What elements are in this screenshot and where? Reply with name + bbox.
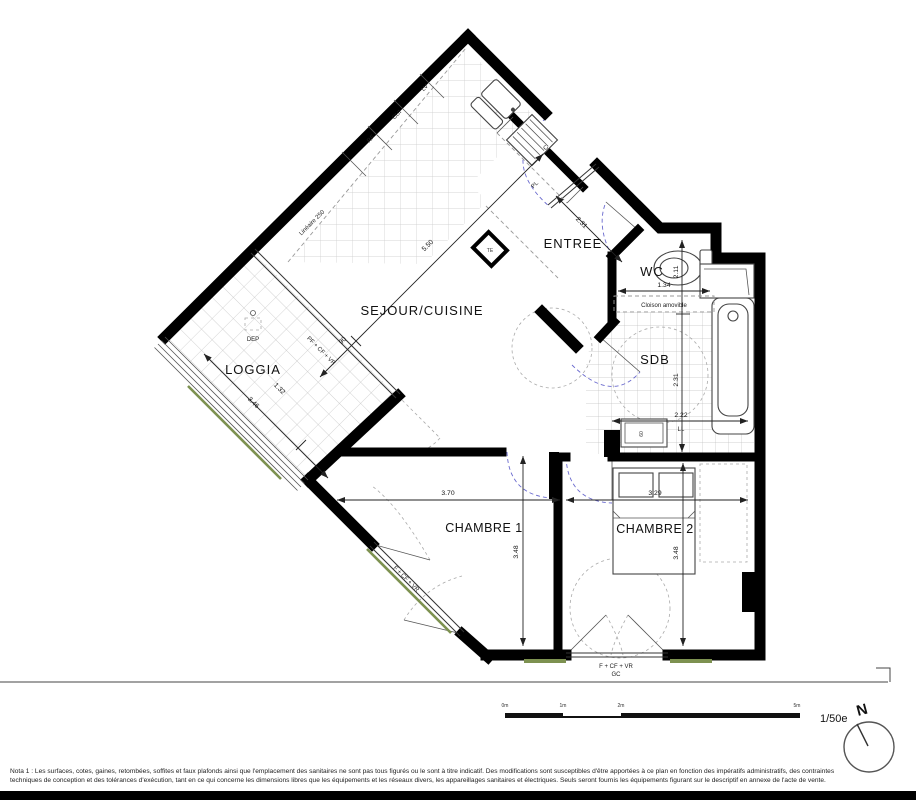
- label-te: TE: [487, 248, 494, 254]
- scale-label: 1/50e: [820, 713, 848, 725]
- chambre1-door-arc: [507, 452, 553, 498]
- room-label-wc: WC: [640, 264, 664, 279]
- floorplan-drawing: SEJOUR/CUISINE ENTREE WC SDB LOGGIA CHAM…: [0, 0, 916, 800]
- label-pl: PL: [531, 180, 541, 190]
- wardrobe-dashed: [700, 464, 747, 562]
- wall-sw-facade: [308, 480, 372, 544]
- dim-ch1-width: 3.70: [441, 490, 454, 497]
- bathtub: [712, 298, 754, 434]
- kitchen-floor-tiles: [288, 48, 536, 264]
- scale-tick-1: 1m: [560, 703, 567, 709]
- floorplan-page: SEJOUR/CUISINE ENTREE WC SDB LOGGIA CHAM…: [0, 0, 916, 800]
- scale-bar: 0m 1m 2m 5m 1/50e: [502, 703, 848, 725]
- label-ll-width: 60: [639, 431, 645, 437]
- room-label-sdb: SDB: [640, 352, 670, 367]
- scale-tick-3: 5m: [794, 703, 801, 709]
- dim-wc-depth: 2.11: [673, 265, 680, 278]
- room-label-entree: ENTREE: [544, 236, 603, 251]
- label-cloison: Cloison amovible: [641, 303, 687, 309]
- bottom-black-bar: [0, 791, 916, 800]
- dim-sdb-width: 2.22: [674, 412, 687, 419]
- dim-wc-width: 1.34: [657, 282, 670, 289]
- label-ll: LL: [678, 427, 685, 433]
- footer-graphics: 0m 1m 2m 5m 1/50e N: [0, 668, 894, 772]
- wc-door-arc: [602, 202, 612, 256]
- label-gc: GC: [612, 672, 622, 678]
- scale-tick-2: 2m: [618, 703, 625, 709]
- wall-ne-2: [597, 165, 642, 210]
- chambre2-door-arc: [566, 457, 612, 503]
- label-window-bottom: F + CF + VR: [599, 664, 633, 670]
- nota-line-2: techniques de conception et des toléranc…: [10, 777, 908, 786]
- dim-ch1-depth: 3.48: [513, 545, 520, 558]
- dim-ch2-width: 3.29: [648, 490, 661, 497]
- label-dep: DEP: [247, 337, 259, 343]
- shelf-niche: [700, 264, 754, 298]
- dim-entree: 2.31: [574, 216, 588, 230]
- nota-line-1: Nota 1 : Les surfaces, cotes, gaines, re…: [10, 768, 908, 777]
- wall-stub-hall: [604, 430, 620, 457]
- room-label-chambre1: CHAMBRE 1: [445, 521, 522, 535]
- pilaster: [742, 572, 760, 612]
- entrance-door-leaf: [548, 164, 596, 205]
- wall-sw-corner: [462, 634, 488, 657]
- room-label-chambre2: CHAMBRE 2: [616, 522, 693, 536]
- room-label-sejour: SEJOUR/CUISINE: [360, 303, 483, 318]
- room-label-loggia: LOGGIA: [225, 362, 281, 377]
- scale-tick-0: 0m: [502, 703, 509, 709]
- north-label: N: [855, 701, 870, 720]
- dim-ch2-depth: 3.48: [673, 546, 680, 559]
- wall-hall-diag: [542, 312, 576, 346]
- north-arrow: N: [844, 701, 894, 772]
- dim-sdb-depth: 2.31: [673, 373, 680, 386]
